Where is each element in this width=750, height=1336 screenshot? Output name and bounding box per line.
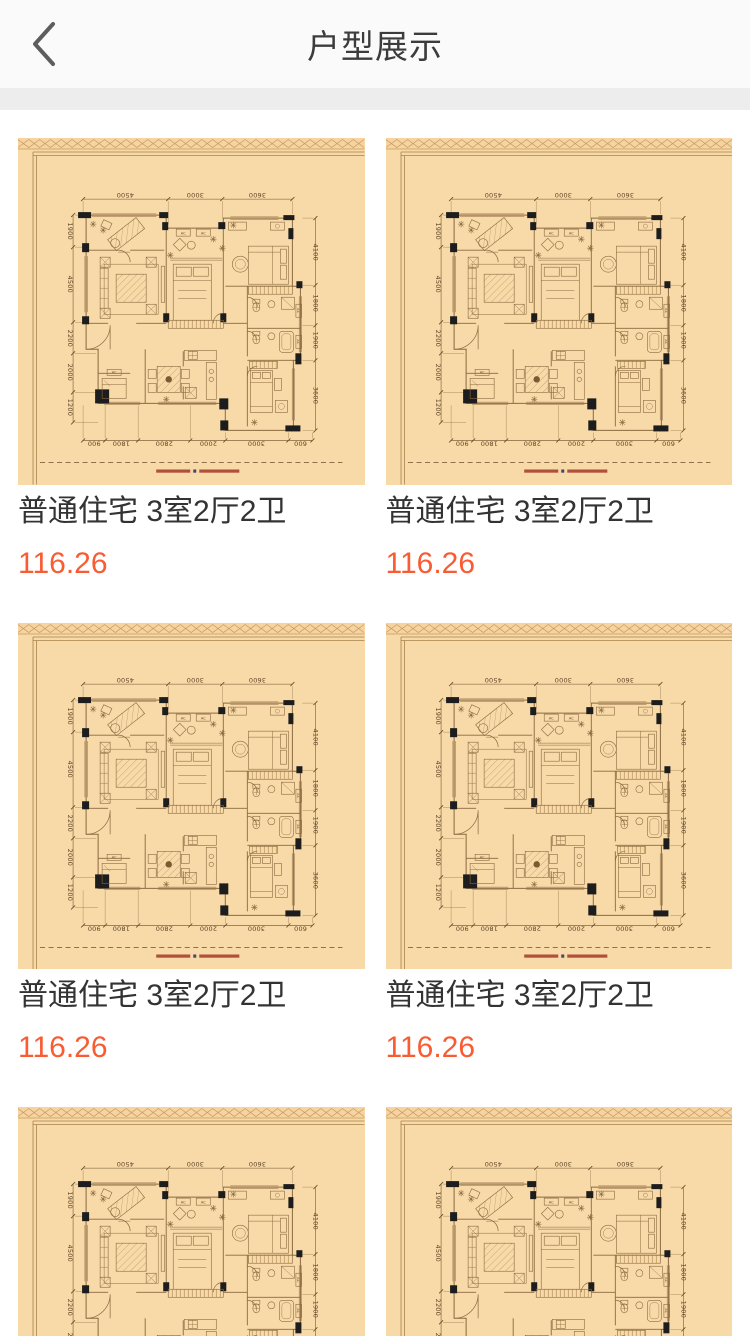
floorplan-card[interactable]: 普通住宅 3室2厅2卫 116.26 — [18, 138, 365, 583]
navbar: 户型展示 — [0, 0, 750, 88]
header-divider — [0, 88, 750, 110]
unit-type-label: 普通住宅 3室2厅2卫 — [18, 493, 365, 531]
floorplan-image — [18, 1107, 365, 1336]
floorplan-card[interactable]: 普通住宅 3室2厅2卫 116.26 — [386, 623, 733, 1068]
floorplan-image — [18, 623, 365, 970]
chevron-left-icon — [27, 18, 61, 70]
floorplan-card[interactable]: 普通住宅 3室2厅2卫 116.26 — [386, 138, 733, 583]
floorplan-card[interactable]: 普通住宅 3室2厅2卫 116.26 — [18, 623, 365, 1068]
floorplan-grid: 普通住宅 3室2厅2卫 116.26 普通住宅 3室2厅2卫 116.26 普通… — [0, 110, 750, 1336]
floorplan-image — [386, 1107, 733, 1336]
back-button[interactable] — [14, 0, 74, 88]
floorplan-page: 户型展示 — [0, 0, 750, 1336]
floorplan-image — [386, 623, 733, 970]
unit-type-label: 普通住宅 3室2厅2卫 — [386, 977, 733, 1015]
unit-area-value: 116.26 — [386, 1029, 733, 1067]
page-title: 户型展示 — [307, 20, 443, 68]
floorplan-card[interactable]: 普通住宅 3室2厅2卫 116.26 — [18, 1107, 365, 1336]
floorplan-card[interactable]: 普通住宅 3室2厅2卫 116.26 — [386, 1107, 733, 1336]
unit-area-value: 116.26 — [386, 545, 733, 583]
unit-type-label: 普通住宅 3室2厅2卫 — [386, 493, 733, 531]
unit-area-value: 116.26 — [18, 1029, 365, 1067]
unit-area-value: 116.26 — [18, 545, 365, 583]
floorplan-image — [18, 138, 365, 485]
floorplan-image — [386, 138, 733, 485]
unit-type-label: 普通住宅 3室2厅2卫 — [18, 977, 365, 1015]
